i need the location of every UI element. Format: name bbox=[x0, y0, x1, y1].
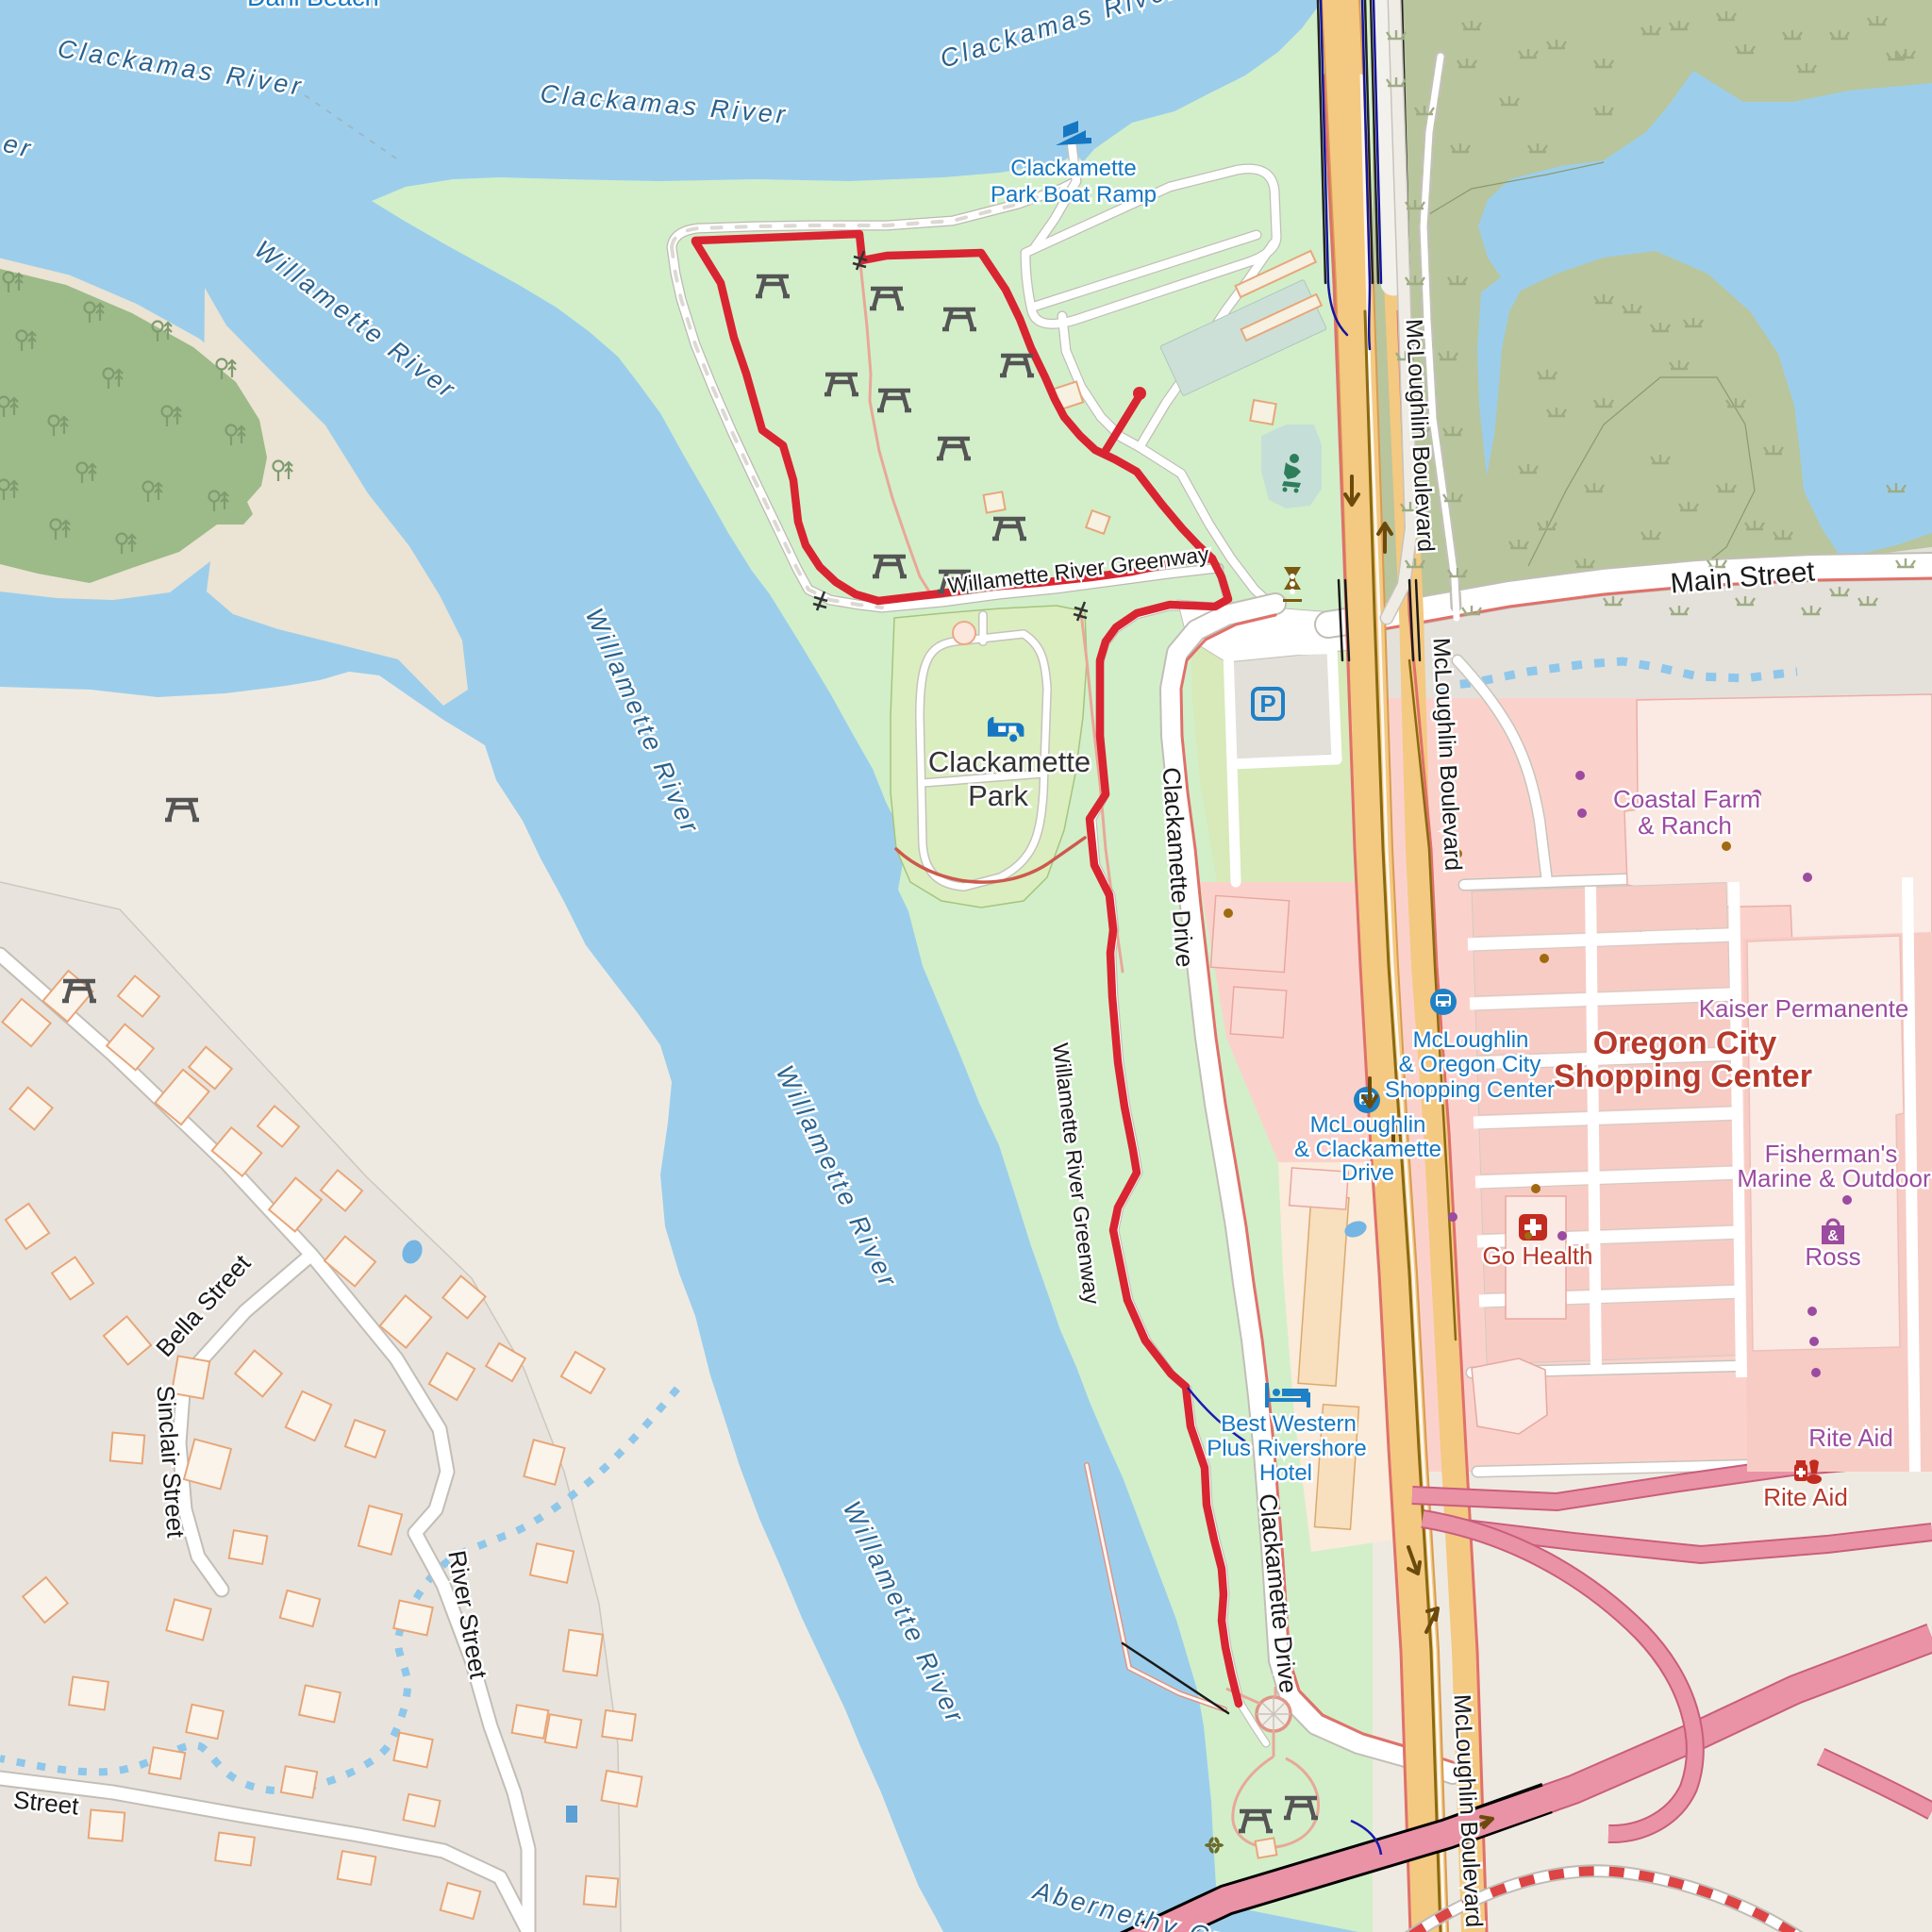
svg-text:Shopping Center: Shopping Center bbox=[1554, 1058, 1812, 1094]
svg-text:Plus Rivershore: Plus Rivershore bbox=[1207, 1436, 1366, 1461]
svg-text:Park Boat Ramp: Park Boat Ramp bbox=[991, 182, 1157, 208]
svg-text:Oregon City: Oregon City bbox=[1593, 1025, 1777, 1061]
svg-text:P: P bbox=[1259, 690, 1275, 718]
svg-text:McLoughlin: McLoughlin bbox=[1413, 1027, 1529, 1053]
svg-text:McLoughlin: McLoughlin bbox=[1310, 1112, 1426, 1138]
svg-text:Rite Aid: Rite Aid bbox=[1808, 1424, 1893, 1452]
svg-text:& Ranch: & Ranch bbox=[1638, 811, 1732, 840]
svg-text:Ross: Ross bbox=[1805, 1242, 1860, 1271]
svg-text:Park: Park bbox=[968, 779, 1028, 812]
svg-text:& Oregon City: & Oregon City bbox=[1399, 1052, 1541, 1077]
svg-text:Kaiser Permanente: Kaiser Permanente bbox=[1699, 994, 1909, 1023]
svg-text:& Clackamette: & Clackamette bbox=[1294, 1137, 1441, 1162]
svg-text:Clackamette: Clackamette bbox=[1010, 156, 1136, 181]
svg-text:Drive: Drive bbox=[1341, 1160, 1394, 1186]
svg-text:Coastal Farm: Coastal Farm bbox=[1613, 785, 1760, 813]
svg-text:Shopping Center: Shopping Center bbox=[1385, 1077, 1555, 1103]
svg-text:Go Health: Go Health bbox=[1482, 1241, 1592, 1270]
svg-text:Hotel: Hotel bbox=[1259, 1460, 1312, 1486]
svg-text:Clackamette: Clackamette bbox=[928, 745, 1091, 778]
svg-text:Rite Aid: Rite Aid bbox=[1763, 1483, 1848, 1511]
svg-text:Best Western: Best Western bbox=[1221, 1411, 1357, 1437]
svg-text:Marine & Outdoor: Marine & Outdoor bbox=[1737, 1164, 1931, 1192]
svg-text:Dahl Beach: Dahl Beach bbox=[247, 0, 379, 11]
